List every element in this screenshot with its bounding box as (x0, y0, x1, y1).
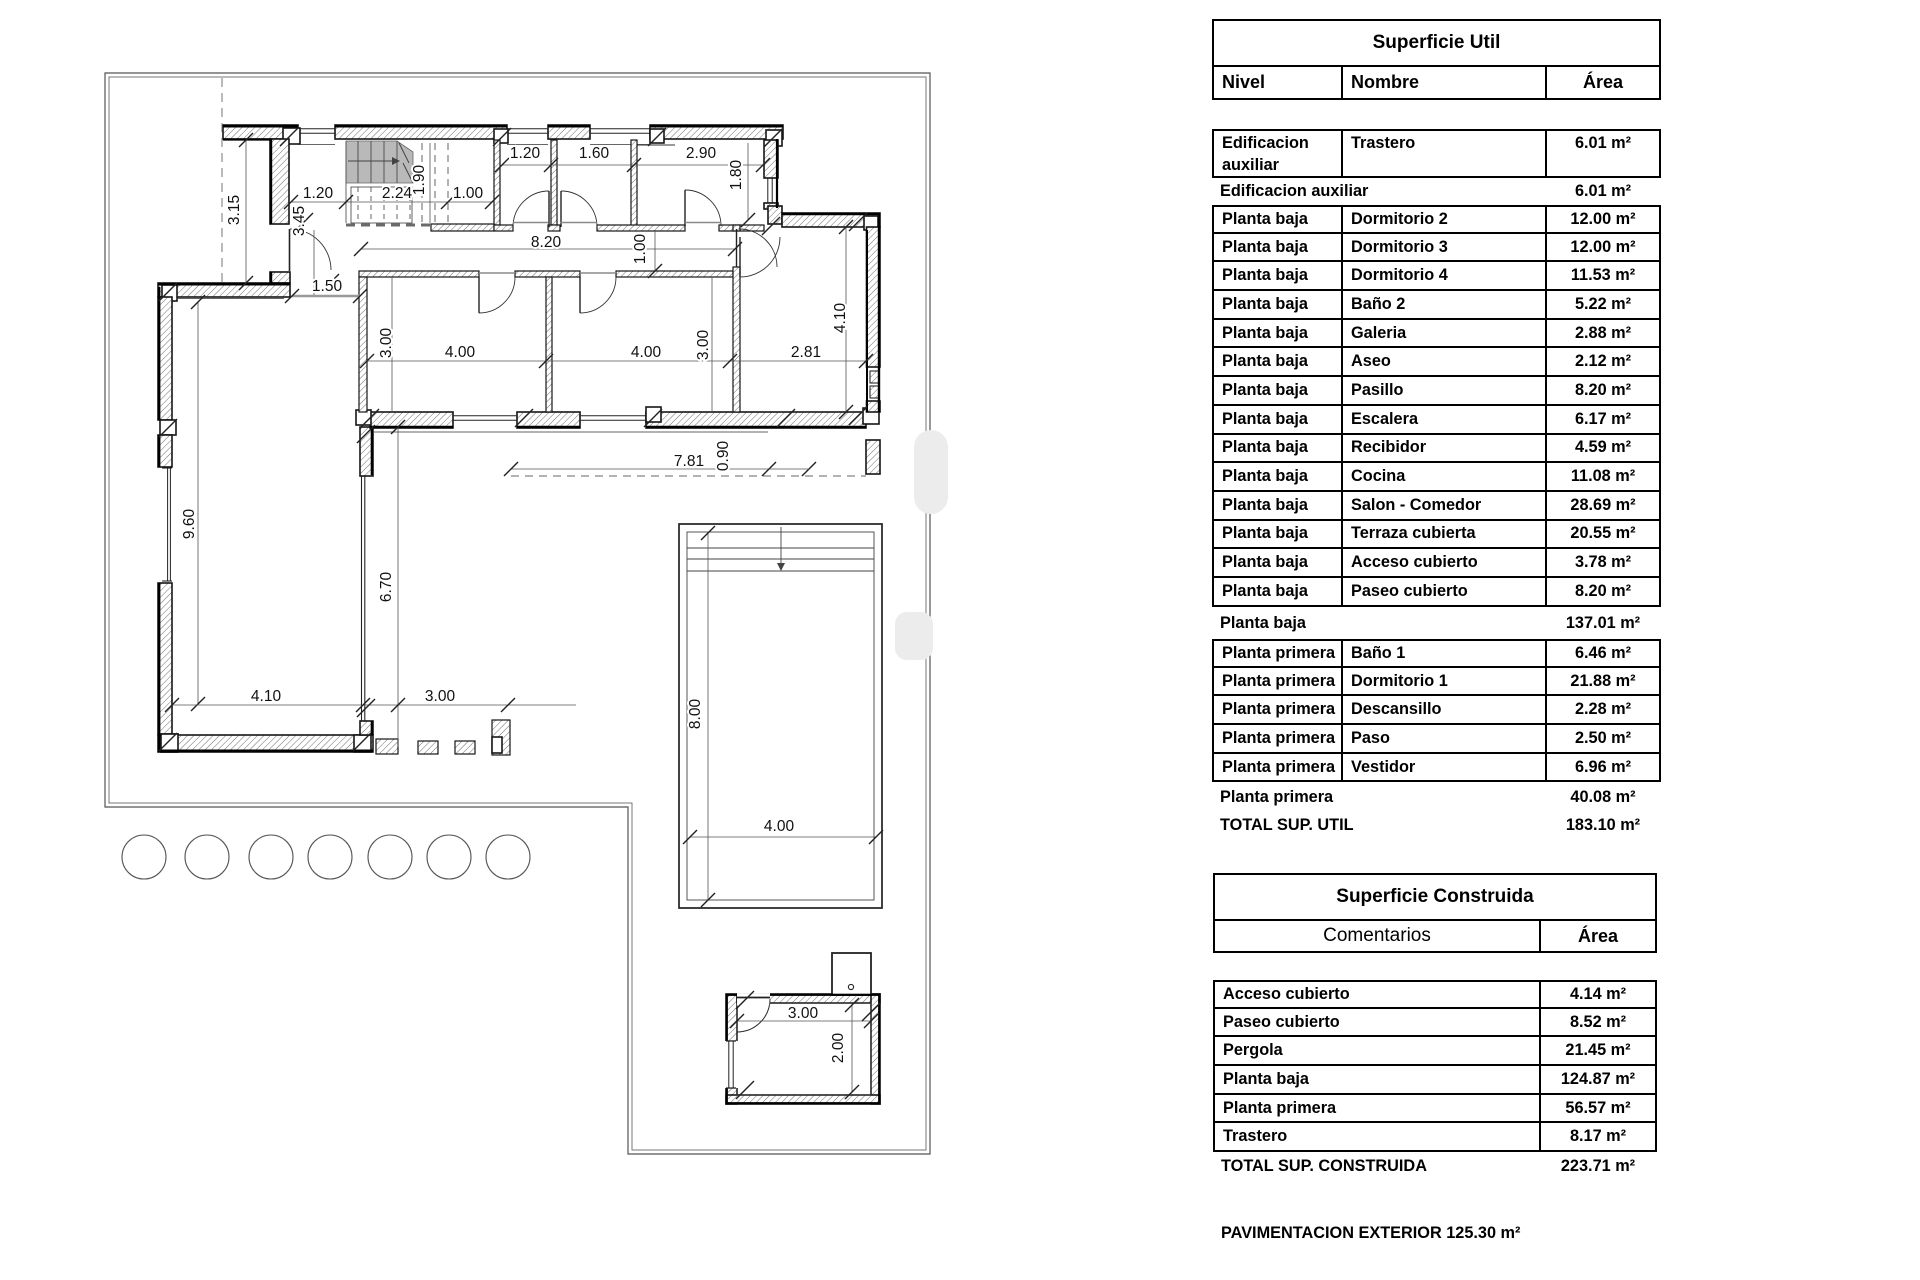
svg-text:6.70: 6.70 (378, 572, 395, 603)
svg-text:2.00: 2.00 (830, 1033, 847, 1064)
svg-text:1.50: 1.50 (312, 278, 343, 295)
svg-text:1.90: 1.90 (411, 165, 428, 196)
svg-text:4.10: 4.10 (832, 303, 849, 334)
svg-text:8.20: 8.20 (531, 234, 562, 251)
svg-text:2.81: 2.81 (791, 344, 821, 361)
svg-text:3.00: 3.00 (788, 1005, 819, 1022)
svg-text:4.00: 4.00 (445, 344, 476, 361)
svg-text:1.00: 1.00 (453, 185, 484, 202)
svg-text:1.60: 1.60 (579, 145, 610, 162)
svg-text:3.00: 3.00 (425, 688, 456, 705)
svg-text:2.90: 2.90 (686, 145, 717, 162)
svg-text:4.10: 4.10 (251, 688, 282, 705)
svg-text:1.00: 1.00 (632, 234, 649, 265)
svg-text:2.24: 2.24 (382, 185, 413, 202)
svg-text:4.00: 4.00 (631, 344, 662, 361)
svg-text:3.00: 3.00 (695, 330, 712, 361)
svg-text:3.00: 3.00 (378, 328, 395, 359)
svg-text:8.00: 8.00 (687, 699, 704, 730)
svg-text:1.80: 1.80 (728, 160, 745, 191)
svg-text:4.00: 4.00 (764, 818, 795, 835)
svg-text:9.60: 9.60 (181, 509, 198, 540)
svg-text:0.90: 0.90 (715, 441, 732, 472)
svg-text:7.81: 7.81 (674, 453, 704, 470)
svg-text:3.45: 3.45 (291, 206, 308, 236)
svg-text:3.15: 3.15 (226, 195, 243, 225)
svg-text:1.20: 1.20 (510, 145, 541, 162)
svg-text:1.20: 1.20 (303, 185, 334, 202)
